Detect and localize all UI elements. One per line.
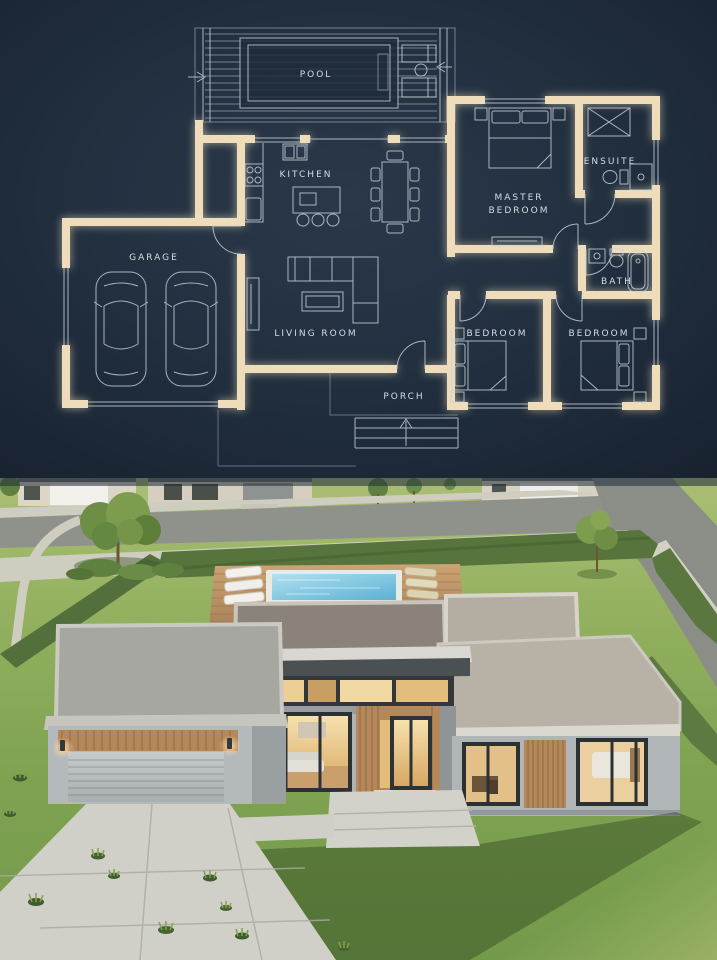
room-label-porch: PORCH [383, 392, 424, 402]
entry [356, 706, 440, 795]
floor-plan-canvas: POOL [0, 0, 717, 478]
room-label-master-line1: MASTER [494, 193, 543, 203]
room-label-master-line2: BEDROOM [489, 206, 550, 216]
roof-master [446, 594, 578, 644]
room-label-pool: POOL [300, 70, 333, 80]
wood-slat-panel [524, 740, 566, 808]
garage-wood-lintel [58, 730, 238, 751]
room-label-living-room: LIVING ROOM [274, 329, 357, 339]
sun-loungers-left [221, 566, 264, 605]
room-label-garage: GARAGE [129, 253, 179, 263]
office-window [462, 742, 520, 806]
pool-water [272, 574, 396, 600]
garage-roof [56, 624, 282, 718]
exterior-render-canvas [0, 478, 717, 960]
right-wing [452, 736, 680, 816]
entry-sidelight [380, 720, 390, 788]
architectural-presentation: POOL [0, 0, 717, 960]
bedroom-window [576, 738, 648, 806]
garage-wall-lamp-left [52, 737, 74, 759]
plan-render-divider [0, 478, 717, 486]
room-label-kitchen: KITCHEN [280, 170, 333, 180]
swimming-pool-plan: POOL [240, 38, 398, 108]
porch-slab [326, 790, 480, 848]
room-label-bedroom-right: BEDROOM [569, 329, 630, 339]
sun-loungers-right [402, 567, 440, 600]
floor-plan: POOL [0, 0, 717, 478]
room-label-bedroom-left: BEDROOM [467, 329, 528, 339]
garage-block [44, 624, 288, 804]
exterior-render [0, 478, 717, 960]
room-label-ensuite: ENSUITE [584, 157, 637, 167]
room-label-bath: BATH [601, 277, 633, 287]
garage-wall-lamp-right [219, 735, 241, 757]
